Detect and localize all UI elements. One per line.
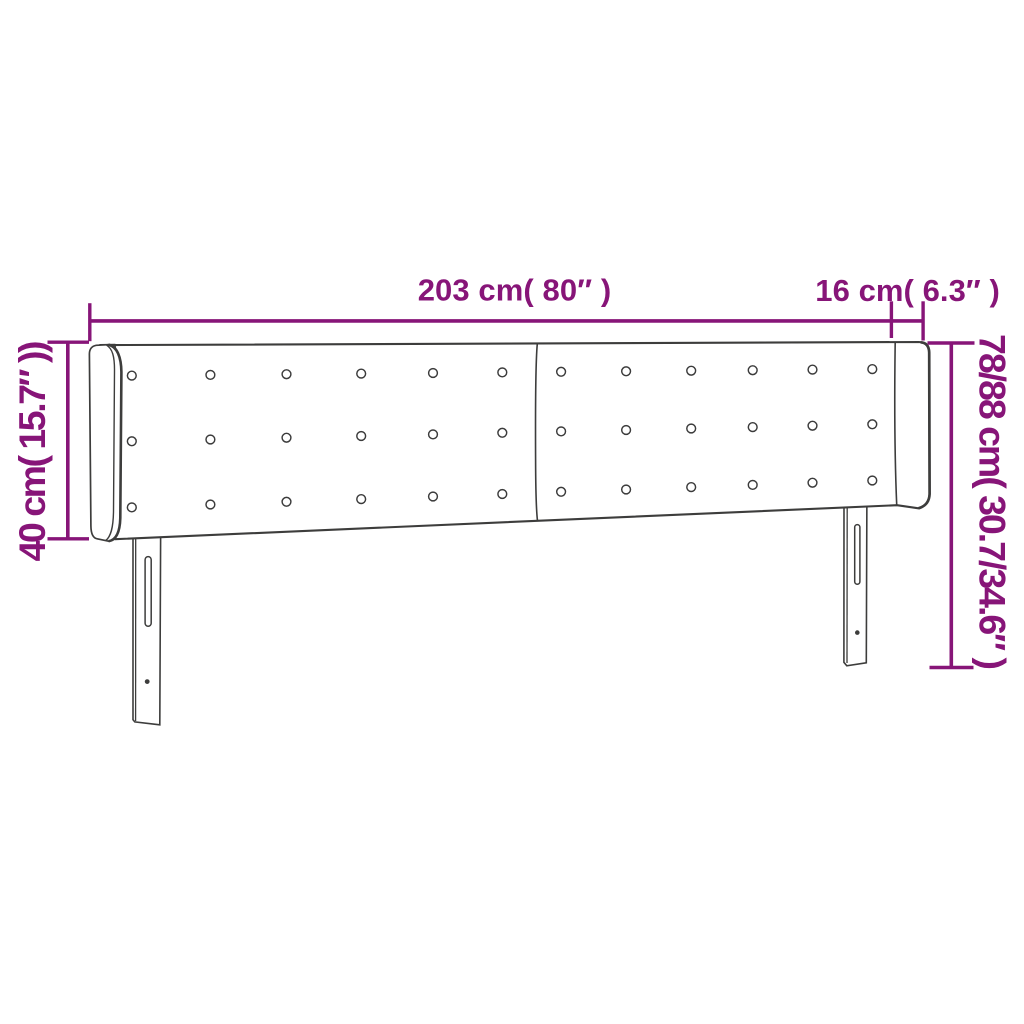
svg-text:40 cm( 15.7″ )): 40 cm( 15.7″ )) bbox=[11, 341, 53, 562]
svg-text:16 cm( 6.3″ ): 16 cm( 6.3″ ) bbox=[815, 273, 1000, 308]
svg-text:203 cm( 80″ ): 203 cm( 80″ ) bbox=[418, 272, 612, 307]
svg-text:78/88 cm( 30.7/34.6″ ): 78/88 cm( 30.7/34.6″ ) bbox=[972, 334, 1014, 670]
